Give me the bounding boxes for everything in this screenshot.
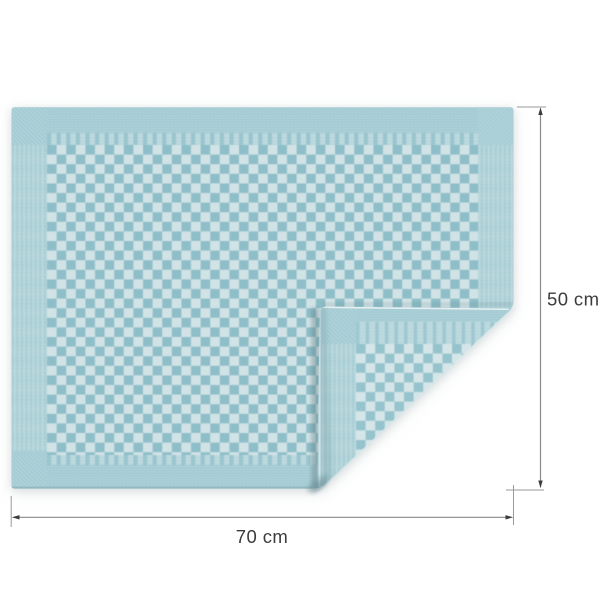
svg-text:70 cm: 70 cm xyxy=(236,526,288,547)
svg-text:50 cm: 50 cm xyxy=(547,289,599,310)
